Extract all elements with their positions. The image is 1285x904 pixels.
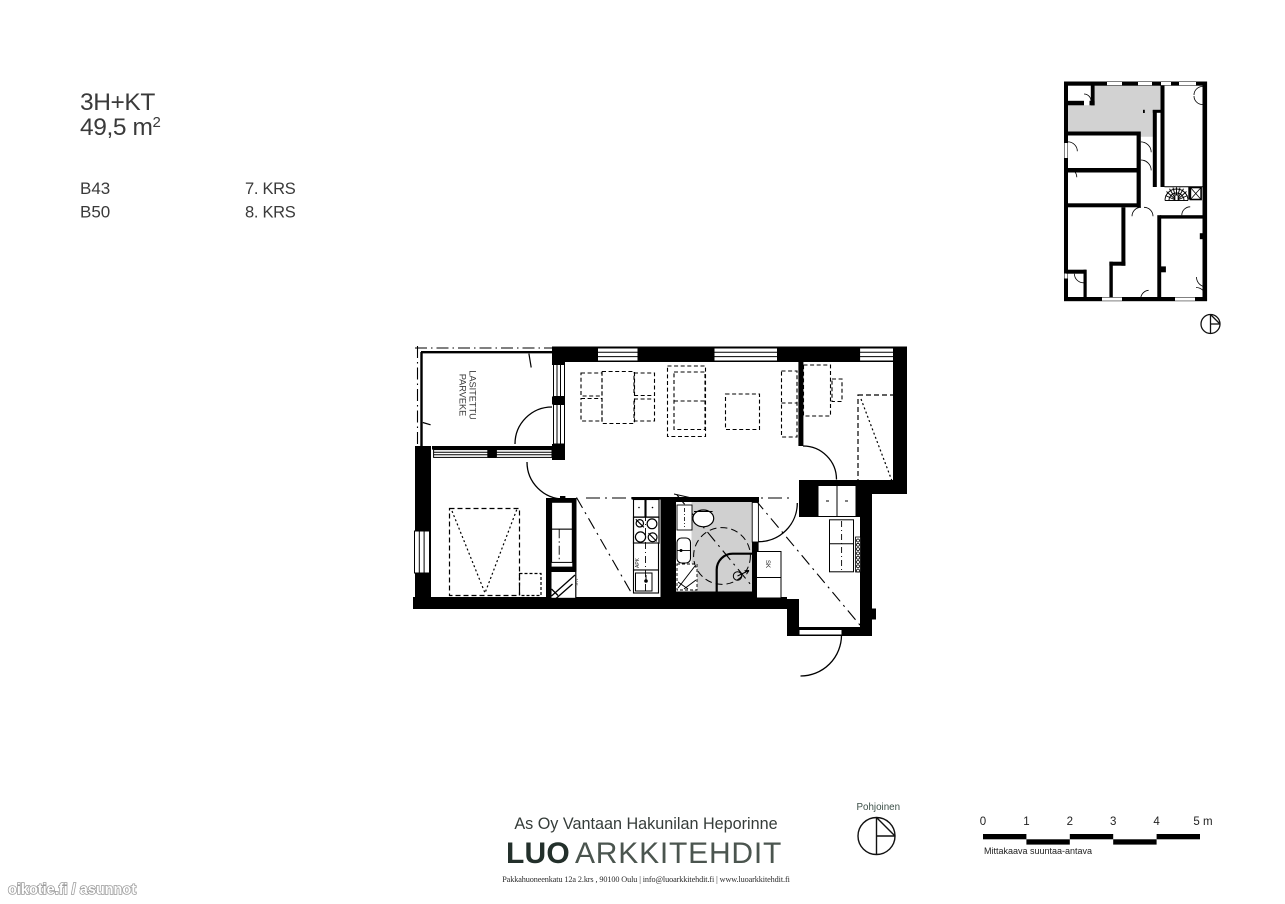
svg-text:APK: APK: [635, 557, 641, 568]
svg-text:SK: SK: [764, 560, 770, 568]
svg-text:2: 2: [1067, 816, 1073, 828]
svg-text:B43: B43: [80, 179, 110, 198]
svg-text:4: 4: [1153, 816, 1160, 828]
svg-text:Pakkahuoneenkatu 12a 2.krs ,: Pakkahuoneenkatu 12a 2.krs , 90100 Oulu …: [502, 875, 790, 884]
svg-text:oikotie.fi / asunnot: oikotie.fi / asunnot: [8, 882, 136, 898]
svg-text:5 m: 5 m: [1193, 816, 1212, 828]
svg-text:49,5 m2: 49,5 m2: [80, 114, 161, 141]
svg-text:B50: B50: [80, 203, 110, 222]
svg-text:ARKKITEHDIT: ARKKITEHDIT: [575, 837, 782, 870]
svg-text:3H+KT: 3H+KT: [80, 89, 155, 116]
svg-text:8. KRS: 8. KRS: [245, 204, 296, 222]
svg-text:Pohjoinen: Pohjoinen: [857, 802, 901, 813]
svg-text:JAK: JAK: [574, 578, 579, 586]
svg-text:As Oy Vantaan Hakunilan Hepori: As Oy Vantaan Hakunilan Heporinne: [514, 815, 777, 833]
svg-text:7. KRS: 7. KRS: [245, 180, 296, 198]
svg-text:LASITETTUPARVEKE: LASITETTUPARVEKE: [458, 370, 478, 420]
svg-text:LUO: LUO: [506, 837, 570, 870]
svg-text:3: 3: [1110, 816, 1116, 828]
svg-text:0: 0: [980, 816, 986, 828]
svg-text:Mittakaava suuntaa-antava: Mittakaava suuntaa-antava: [984, 846, 1092, 856]
svg-text:1: 1: [1023, 816, 1029, 828]
